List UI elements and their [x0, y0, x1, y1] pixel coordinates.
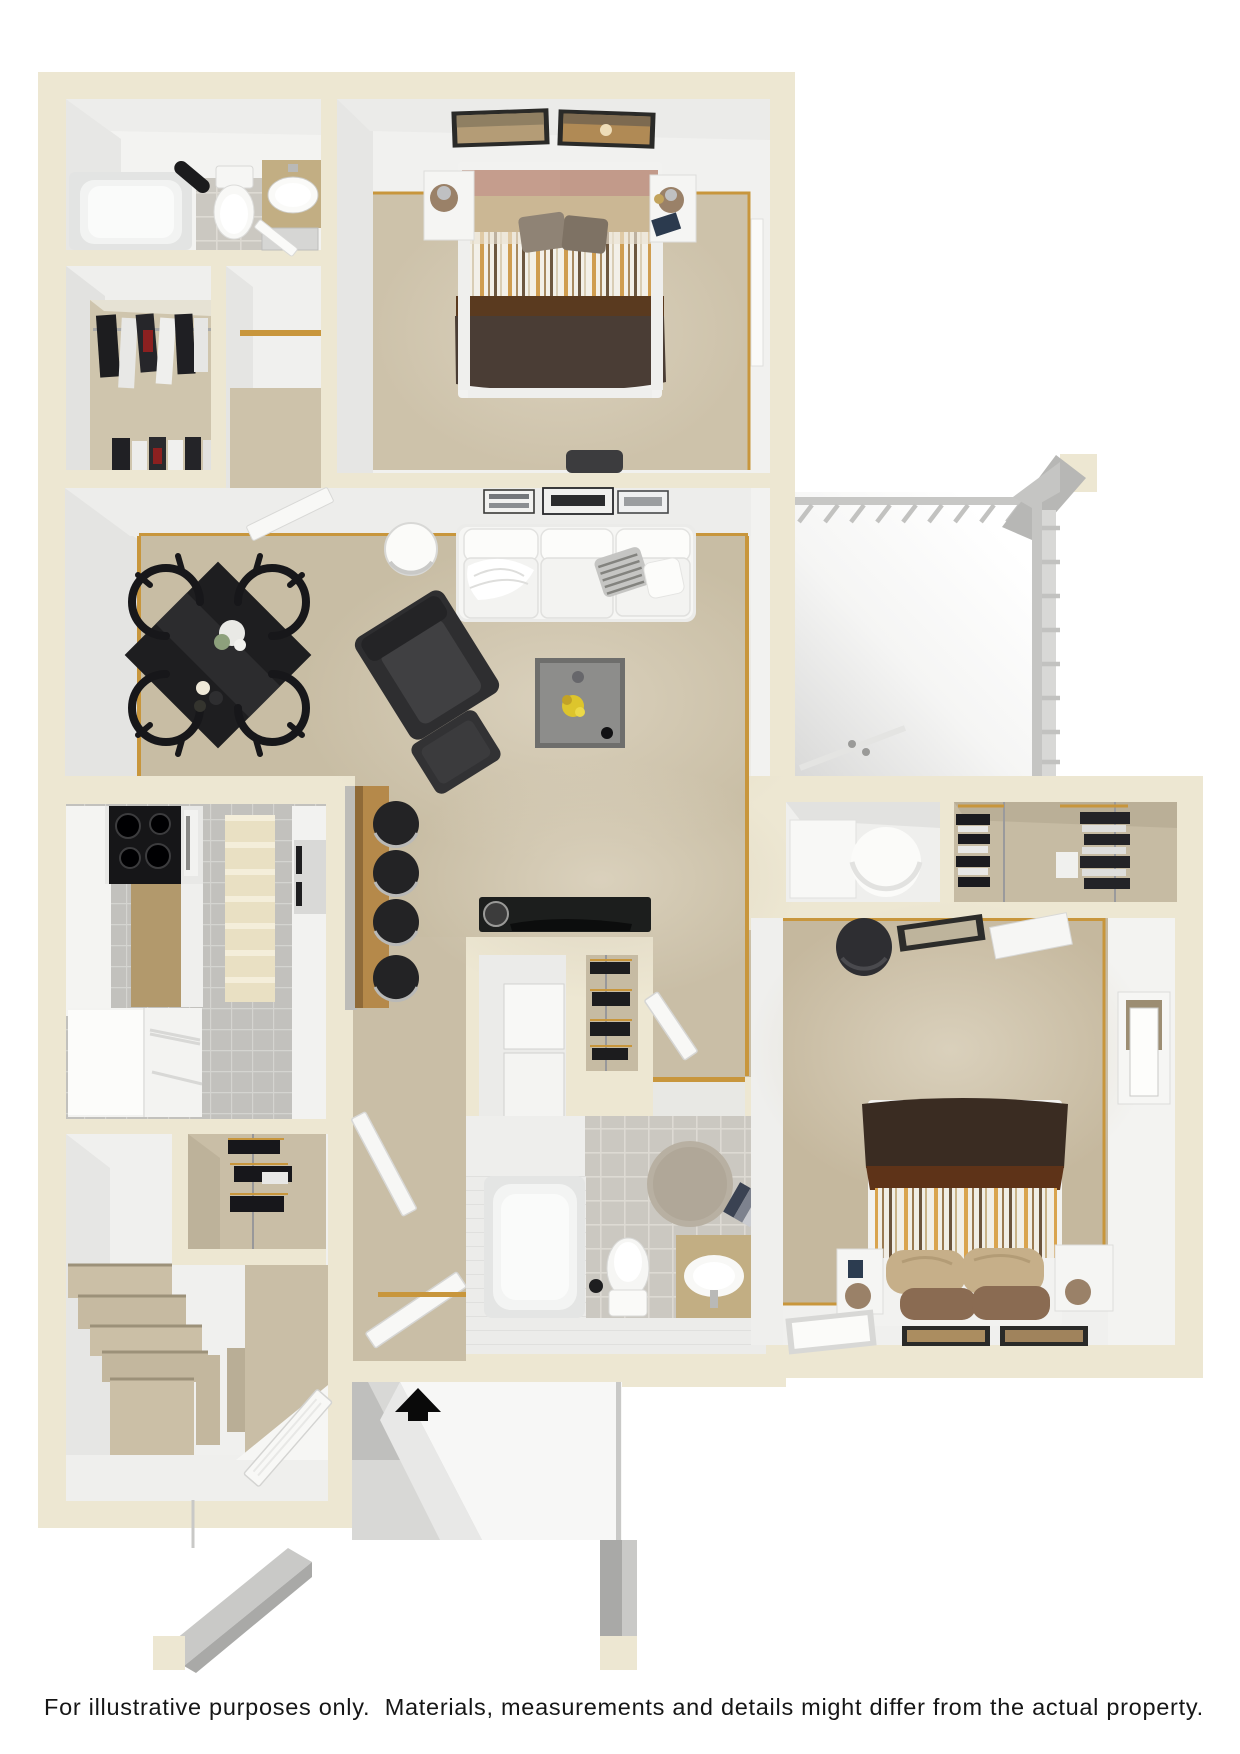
- svg-text:For illustrative purposes only: For illustrative purposes only. Material…: [44, 1694, 1204, 1720]
